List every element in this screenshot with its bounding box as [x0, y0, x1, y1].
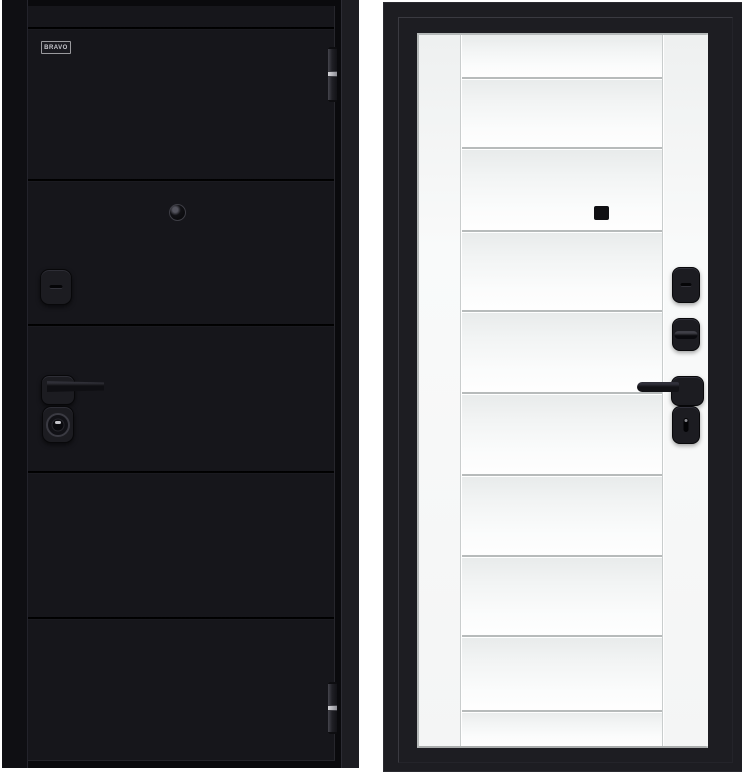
thumbturn-escutcheon	[672, 267, 700, 303]
hinge-cap	[328, 682, 337, 684]
panel-groove	[460, 635, 662, 638]
panel-groove	[460, 710, 662, 713]
hinge-cap	[328, 732, 337, 734]
door-panel	[460, 147, 662, 230]
panel-groove	[28, 27, 334, 30]
panel-groove	[460, 474, 662, 477]
panel-groove	[28, 617, 334, 620]
cylinder-lock	[672, 406, 700, 444]
escutcheon-slot	[681, 283, 692, 287]
door-panel	[460, 710, 662, 746]
hinge-cap	[328, 47, 337, 49]
panel-groove	[460, 392, 662, 395]
top-hinge	[328, 47, 337, 102]
right-door-photo	[381, 0, 742, 773]
panel-groove	[460, 147, 662, 150]
thumbturn-knob-plate	[672, 318, 700, 351]
vertical-groove	[460, 35, 462, 746]
panel-groove	[28, 324, 334, 327]
panel-groove	[460, 77, 662, 80]
panel-groove	[460, 555, 662, 558]
door-panel	[460, 310, 662, 392]
panel-field	[460, 35, 662, 746]
key-slot-glint	[55, 421, 61, 424]
door-panel	[460, 555, 662, 635]
lever-handle	[47, 381, 104, 392]
door-panel	[460, 474, 662, 555]
cylinder-lock	[42, 406, 74, 443]
door-frame-right-jamb	[341, 0, 359, 768]
left-door-photo: BRAVO	[0, 0, 358, 773]
door-frame-left-jamb	[2, 0, 28, 768]
lever-handle	[637, 382, 679, 392]
night-latch-escutcheon	[40, 269, 72, 305]
door-panel	[460, 392, 662, 474]
thumbturn-knob	[675, 331, 698, 339]
hinge-cap	[328, 100, 337, 102]
door-panel	[460, 77, 662, 147]
keyhole-notch	[685, 419, 688, 422]
hinge-band	[328, 71, 337, 77]
cylinder-core	[52, 418, 65, 431]
leaf-stile-left	[419, 35, 460, 746]
brand-badge-label: BRAVO	[44, 45, 68, 51]
panel-groove	[28, 471, 334, 474]
door-panel	[460, 230, 662, 310]
panel-groove	[28, 179, 334, 182]
peephole-cover	[594, 206, 609, 220]
peephole	[169, 204, 186, 221]
door-panel	[460, 635, 662, 710]
brand-badge: BRAVO	[41, 41, 71, 54]
door-panel	[460, 35, 662, 77]
latch-slot	[50, 285, 63, 289]
bottom-hinge	[328, 682, 337, 734]
panel-groove	[460, 230, 662, 233]
panel-groove	[460, 310, 662, 313]
hinge-band	[328, 705, 337, 711]
